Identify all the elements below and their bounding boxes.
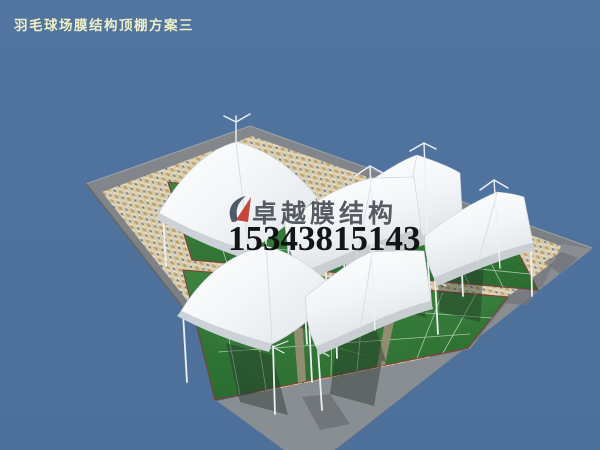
scene-svg: 卓越膜结构 15343815143 羽毛球场膜结构顶棚方案三 (0, 0, 600, 450)
render-viewport: 卓越膜结构 15343815143 羽毛球场膜结构顶棚方案三 (0, 0, 600, 450)
page-title: 羽毛球场膜结构顶棚方案三 (14, 17, 194, 33)
phone-text: 15343815143 (228, 219, 421, 258)
watermark: 卓越膜结构 15343815143 (228, 196, 421, 258)
